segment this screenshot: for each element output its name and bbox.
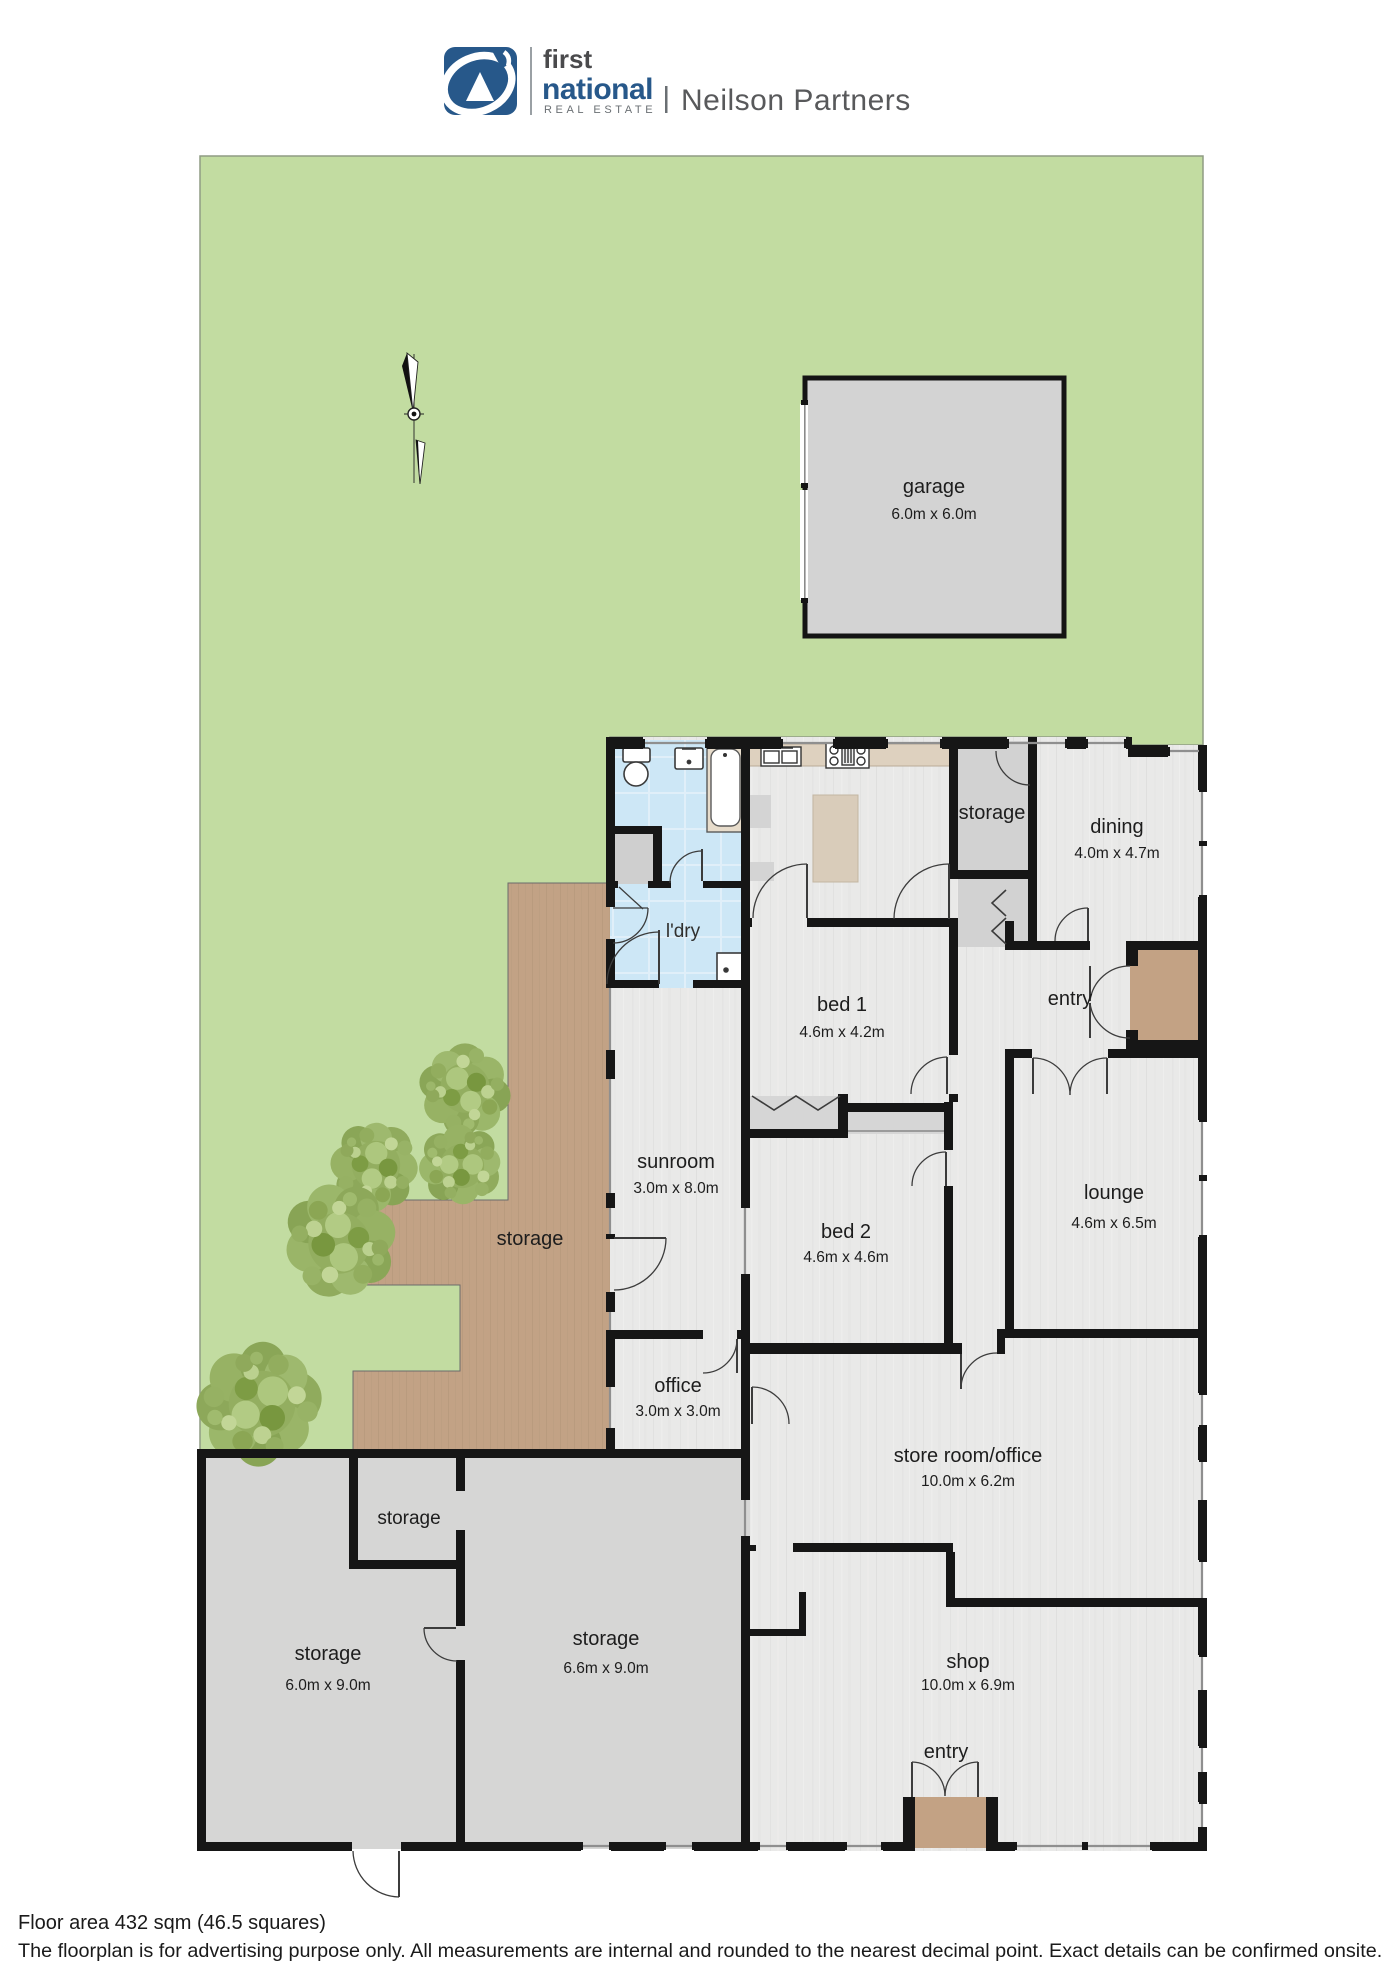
svg-text:first: first [543, 44, 592, 74]
svg-text:storage: storage [573, 1628, 640, 1650]
svg-text:storage: storage [959, 802, 1026, 824]
svg-text:6.0m x 9.0m: 6.0m x 9.0m [285, 1677, 370, 1694]
svg-text:10.0m x 6.2m: 10.0m x 6.2m [921, 1473, 1015, 1490]
svg-text:storage: storage [377, 1508, 440, 1529]
svg-text:national: national [542, 73, 653, 106]
svg-text:bed 2: bed 2 [821, 1221, 871, 1243]
svg-text:lounge: lounge [1084, 1182, 1144, 1204]
svg-text:store room/office: store room/office [894, 1445, 1043, 1467]
svg-text:dining: dining [1090, 816, 1143, 838]
svg-text:storage: storage [295, 1643, 362, 1665]
svg-text:l'dry: l'dry [666, 921, 701, 942]
svg-text:Floor area 432 sqm (46.5 squar: Floor area 432 sqm (46.5 squares) [18, 1912, 326, 1934]
svg-text:The floorplan is for advertisi: The floorplan is for advertising purpose… [18, 1940, 1382, 1962]
svg-text:shop: shop [946, 1651, 989, 1673]
svg-text:bed 1: bed 1 [817, 994, 867, 1016]
svg-text:4.6m x 4.6m: 4.6m x 4.6m [803, 1249, 888, 1266]
svg-text:garage: garage [903, 476, 965, 498]
svg-text:sunroom: sunroom [637, 1151, 715, 1173]
svg-text:6.0m x 6.0m: 6.0m x 6.0m [891, 506, 976, 523]
svg-text:entry: entry [1048, 988, 1092, 1010]
svg-text:6.6m x 9.0m: 6.6m x 9.0m [563, 1660, 648, 1677]
svg-text:3.0m x 8.0m: 3.0m x 8.0m [633, 1180, 718, 1197]
svg-text:Neilson Partners: Neilson Partners [681, 84, 911, 117]
svg-text:3.0m x 3.0m: 3.0m x 3.0m [635, 1403, 720, 1420]
svg-text:storage: storage [497, 1228, 564, 1250]
svg-text:office: office [654, 1375, 701, 1397]
svg-text:entry: entry [924, 1741, 968, 1763]
svg-text:4.6m x 6.5m: 4.6m x 6.5m [1071, 1215, 1156, 1232]
svg-text:4.6m x 4.2m: 4.6m x 4.2m [799, 1024, 884, 1041]
svg-text:10.0m x 6.9m: 10.0m x 6.9m [921, 1677, 1015, 1694]
svg-text:REAL ESTATE: REAL ESTATE [544, 104, 656, 116]
svg-text:4.0m x 4.7m: 4.0m x 4.7m [1074, 845, 1159, 862]
